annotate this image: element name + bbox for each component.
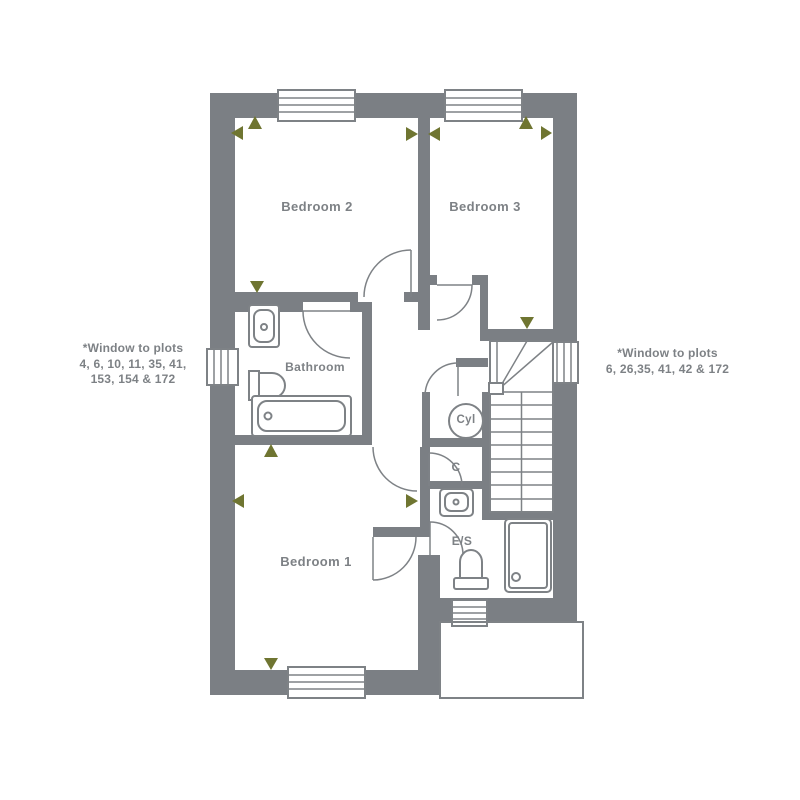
wall-cylinder-north bbox=[456, 358, 488, 367]
bathroom-bath bbox=[252, 396, 351, 436]
door-bedroom2 bbox=[364, 250, 411, 297]
cylinder-label: Cyl bbox=[436, 414, 496, 426]
door-bathroom bbox=[303, 311, 350, 358]
marker-bed2-right-icon bbox=[406, 127, 418, 141]
wall-bed3-south-stub-west bbox=[430, 275, 437, 285]
door-bedroom3 bbox=[437, 285, 472, 320]
left-annotation-line3: 153, 154 & 172 bbox=[58, 372, 208, 388]
wall-cylinder-south bbox=[422, 438, 488, 447]
marker-bed1-right-icon bbox=[406, 494, 418, 508]
wall-bed3-stair-connector bbox=[480, 285, 488, 341]
stair-newel-post bbox=[489, 383, 503, 394]
wall-ensuite-west-lower bbox=[418, 555, 440, 670]
marker-bed3-right-icon bbox=[541, 126, 552, 140]
staircase bbox=[489, 341, 553, 512]
window-bedroom3-top bbox=[445, 90, 522, 121]
ensuite-shower bbox=[505, 519, 551, 592]
wall-bed3-south-stub-east bbox=[472, 275, 488, 285]
bedroom1-label: Bedroom 1 bbox=[236, 554, 396, 569]
door-bedroom1 bbox=[373, 447, 417, 491]
wall-corridor-band bbox=[373, 527, 430, 537]
cupboard-label: C bbox=[426, 460, 486, 474]
lower-roof-outline bbox=[440, 622, 583, 698]
wall-left bbox=[210, 93, 235, 695]
wall-bed2-south bbox=[235, 292, 358, 302]
bathroom-label: Bathroom bbox=[235, 360, 395, 374]
bathroom-basin bbox=[249, 305, 279, 347]
wall-bathroom-east bbox=[362, 308, 372, 445]
left-window-annotation: *Window to plots 4, 6, 10, 11, 35, 41, 1… bbox=[58, 341, 208, 388]
wall-stair-west bbox=[482, 392, 490, 520]
floor-plan: Bedroom 2 Bedroom 3 Bathroom Bedroom 1 C… bbox=[0, 0, 800, 800]
marker-bed1-down-icon bbox=[264, 658, 278, 670]
left-annotation-line2: 4, 6, 10, 11, 35, 41, bbox=[58, 357, 208, 373]
right-annotation-line2: 6, 26,35, 41, 42 & 172 bbox=[590, 362, 745, 378]
floor-plan-drawing bbox=[0, 0, 800, 800]
wall-ensuite-bottom bbox=[428, 598, 577, 622]
window-bathroom-left bbox=[207, 349, 238, 385]
right-annotation-line1: *Window to plots bbox=[590, 346, 745, 362]
bedroom2-label: Bedroom 2 bbox=[237, 199, 397, 214]
window-stairs-right bbox=[550, 342, 578, 383]
window-bedroom2-top bbox=[278, 90, 355, 121]
ensuite-label: E/S bbox=[432, 534, 492, 548]
marker-stairs-down-icon bbox=[520, 317, 534, 329]
marker-bed2-down-icon bbox=[250, 281, 264, 293]
wall-cupboard-south bbox=[420, 481, 488, 489]
ensuite-toilet bbox=[454, 550, 488, 589]
left-annotation-line1: *Window to plots bbox=[58, 341, 208, 357]
marker-bed1-up-icon bbox=[264, 444, 278, 457]
ensuite-basin bbox=[440, 489, 473, 516]
wall-stairwell-north bbox=[488, 329, 553, 341]
bedroom3-label: Bedroom 3 bbox=[405, 199, 565, 214]
right-window-annotation: *Window to plots 6, 26,35, 41, 42 & 172 bbox=[590, 346, 745, 377]
wall-bed2-door-post bbox=[404, 292, 420, 302]
window-bedroom1-bottom bbox=[288, 667, 365, 698]
door-cylinder-cupboard bbox=[425, 363, 458, 396]
